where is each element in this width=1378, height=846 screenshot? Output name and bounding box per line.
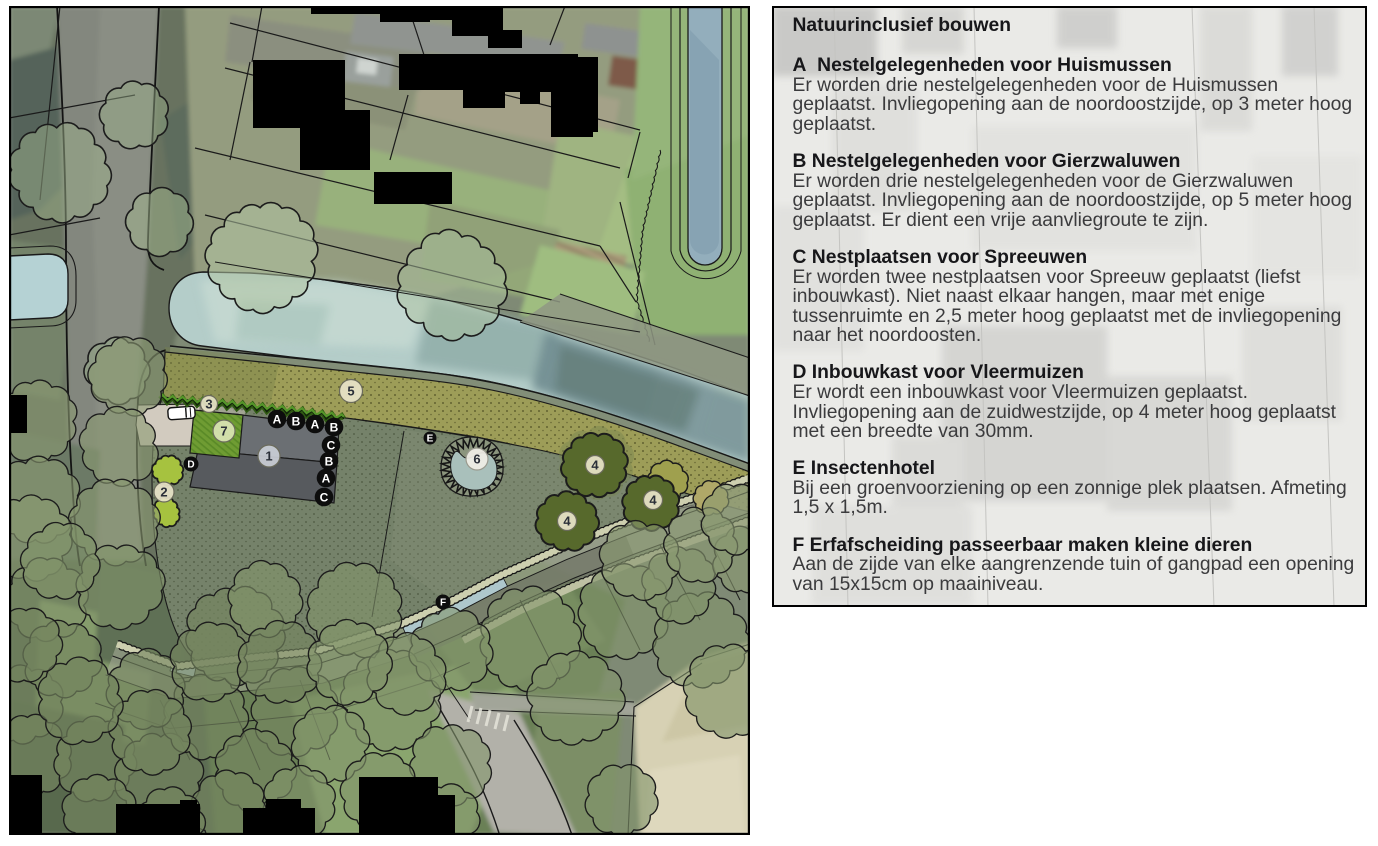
svg-text:A: A xyxy=(273,412,282,426)
svg-text:C: C xyxy=(327,438,336,452)
svg-text:4: 4 xyxy=(563,514,571,529)
svg-text:A: A xyxy=(311,417,320,431)
svg-text:B: B xyxy=(330,420,339,434)
svg-text:5: 5 xyxy=(347,384,354,399)
svg-text:B: B xyxy=(292,414,301,428)
svg-text:C: C xyxy=(320,490,329,504)
svg-text:E: E xyxy=(427,434,434,445)
svg-text:D: D xyxy=(187,460,194,471)
svg-text:B: B xyxy=(325,454,334,468)
svg-text:F: F xyxy=(440,598,446,609)
svg-text:4: 4 xyxy=(649,493,657,508)
svg-text:3: 3 xyxy=(205,397,212,412)
svg-text:1: 1 xyxy=(265,449,272,464)
svg-text:A: A xyxy=(322,471,331,485)
svg-text:7: 7 xyxy=(220,424,227,439)
svg-text:2: 2 xyxy=(160,485,167,500)
svg-text:4: 4 xyxy=(591,458,599,473)
svg-text:6: 6 xyxy=(473,452,480,467)
